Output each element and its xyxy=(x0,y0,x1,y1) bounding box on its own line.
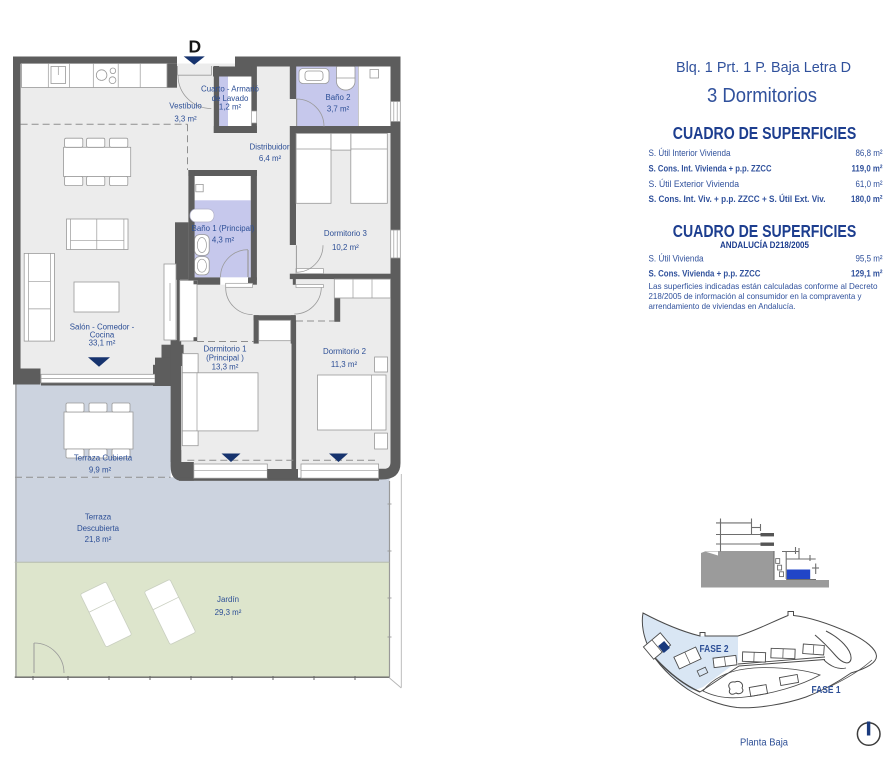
svg-text:D: D xyxy=(188,37,201,57)
svg-text:arrendamiento de viviendas en: arrendamiento de viviendas en Andalucía. xyxy=(649,301,796,311)
svg-text:Dormitorio 1: Dormitorio 1 xyxy=(204,345,247,354)
svg-text:Terraza Cubierta: Terraza Cubierta xyxy=(74,454,133,463)
svg-text:S. Útil Interior Vivienda: S. Útil Interior Vivienda xyxy=(649,148,732,159)
svg-text:21,8 m²: 21,8 m² xyxy=(85,535,112,544)
svg-text:119,0 m²: 119,0 m² xyxy=(852,164,883,175)
svg-text:CUADRO DE SUPERFICIES: CUADRO DE SUPERFICIES xyxy=(673,123,857,143)
svg-text:Jardín: Jardín xyxy=(217,595,239,604)
svg-text:61,0 m²: 61,0 m² xyxy=(856,179,883,190)
svg-text:CUADRO DE SUPERFICIES: CUADRO DE SUPERFICIES xyxy=(673,221,857,241)
svg-text:3 Dormitorios: 3 Dormitorios xyxy=(707,85,817,107)
svg-text:Dormitorio 2: Dormitorio 2 xyxy=(323,347,366,356)
svg-text:Vestíbulo: Vestíbulo xyxy=(169,102,202,111)
svg-text:4,3 m²: 4,3 m² xyxy=(212,236,235,245)
svg-text:1,2 m²: 1,2 m² xyxy=(219,103,242,112)
svg-text:S. Útil Vivienda: S. Útil Vivienda xyxy=(649,254,705,265)
svg-text:Planta Baja: Planta Baja xyxy=(740,738,788,749)
svg-text:Baño 1 (Principal): Baño 1 (Principal) xyxy=(192,224,255,233)
svg-text:95,5 m²: 95,5 m² xyxy=(856,254,883,265)
svg-text:Dormitorio 3: Dormitorio 3 xyxy=(324,229,368,238)
svg-text:9,9 m²: 9,9 m² xyxy=(89,466,112,475)
svg-text:3,3 m²: 3,3 m² xyxy=(174,115,197,124)
svg-text:33,1 m²: 33,1 m² xyxy=(89,339,116,348)
svg-text:11,3 m²: 11,3 m² xyxy=(331,360,358,369)
svg-text:ANDALUCÍA D218/2005: ANDALUCÍA D218/2005 xyxy=(720,240,809,250)
svg-text:Las superficies indicadas está: Las superficies indicadas están calculad… xyxy=(649,281,878,291)
svg-text:29,3 m²: 29,3 m² xyxy=(215,608,242,617)
svg-text:Terraza: Terraza xyxy=(85,513,112,522)
svg-text:S. Cons. Int. Viv. + p.p. ZZCC: S. Cons. Int. Viv. + p.p. ZZCC + S. Útil… xyxy=(649,193,826,205)
svg-text:6,4 m²: 6,4 m² xyxy=(259,154,282,163)
svg-text:S. Cons. Vivienda + p.p. ZZCC: S. Cons. Vivienda + p.p. ZZCC xyxy=(649,269,761,280)
svg-text:Blq. 1 Prt. 1 P. Baja Letra D: Blq. 1 Prt. 1 P. Baja Letra D xyxy=(676,60,851,76)
svg-text:13,3 m²: 13,3 m² xyxy=(212,363,239,372)
svg-text:218/2005 de información al con: 218/2005 de información al consumidor en… xyxy=(649,291,863,301)
svg-text:3,7 m²: 3,7 m² xyxy=(327,104,350,113)
svg-text:Distribuidor: Distribuidor xyxy=(250,143,290,152)
svg-text:Cuarto - Armarió: Cuarto - Armarió xyxy=(201,84,259,93)
svg-text:Descubierta: Descubierta xyxy=(77,524,120,533)
svg-text:FASE 2: FASE 2 xyxy=(700,643,729,655)
svg-text:S. Cons. Int. Vivienda + p.p.: S. Cons. Int. Vivienda + p.p. ZZCC xyxy=(649,164,772,175)
svg-text:FASE 1: FASE 1 xyxy=(812,684,841,696)
svg-text:180,0 m²: 180,0 m² xyxy=(851,194,883,205)
svg-text:Baño 2: Baño 2 xyxy=(325,93,350,102)
svg-text:S. Útil Exterior Vivienda: S. Útil Exterior Vivienda xyxy=(649,179,740,190)
svg-text:(Principal ): (Principal ) xyxy=(206,354,244,363)
svg-text:10,2 m²: 10,2 m² xyxy=(332,243,359,252)
svg-text:129,1 m²: 129,1 m² xyxy=(851,269,883,280)
svg-text:86,8 m²: 86,8 m² xyxy=(856,148,883,159)
